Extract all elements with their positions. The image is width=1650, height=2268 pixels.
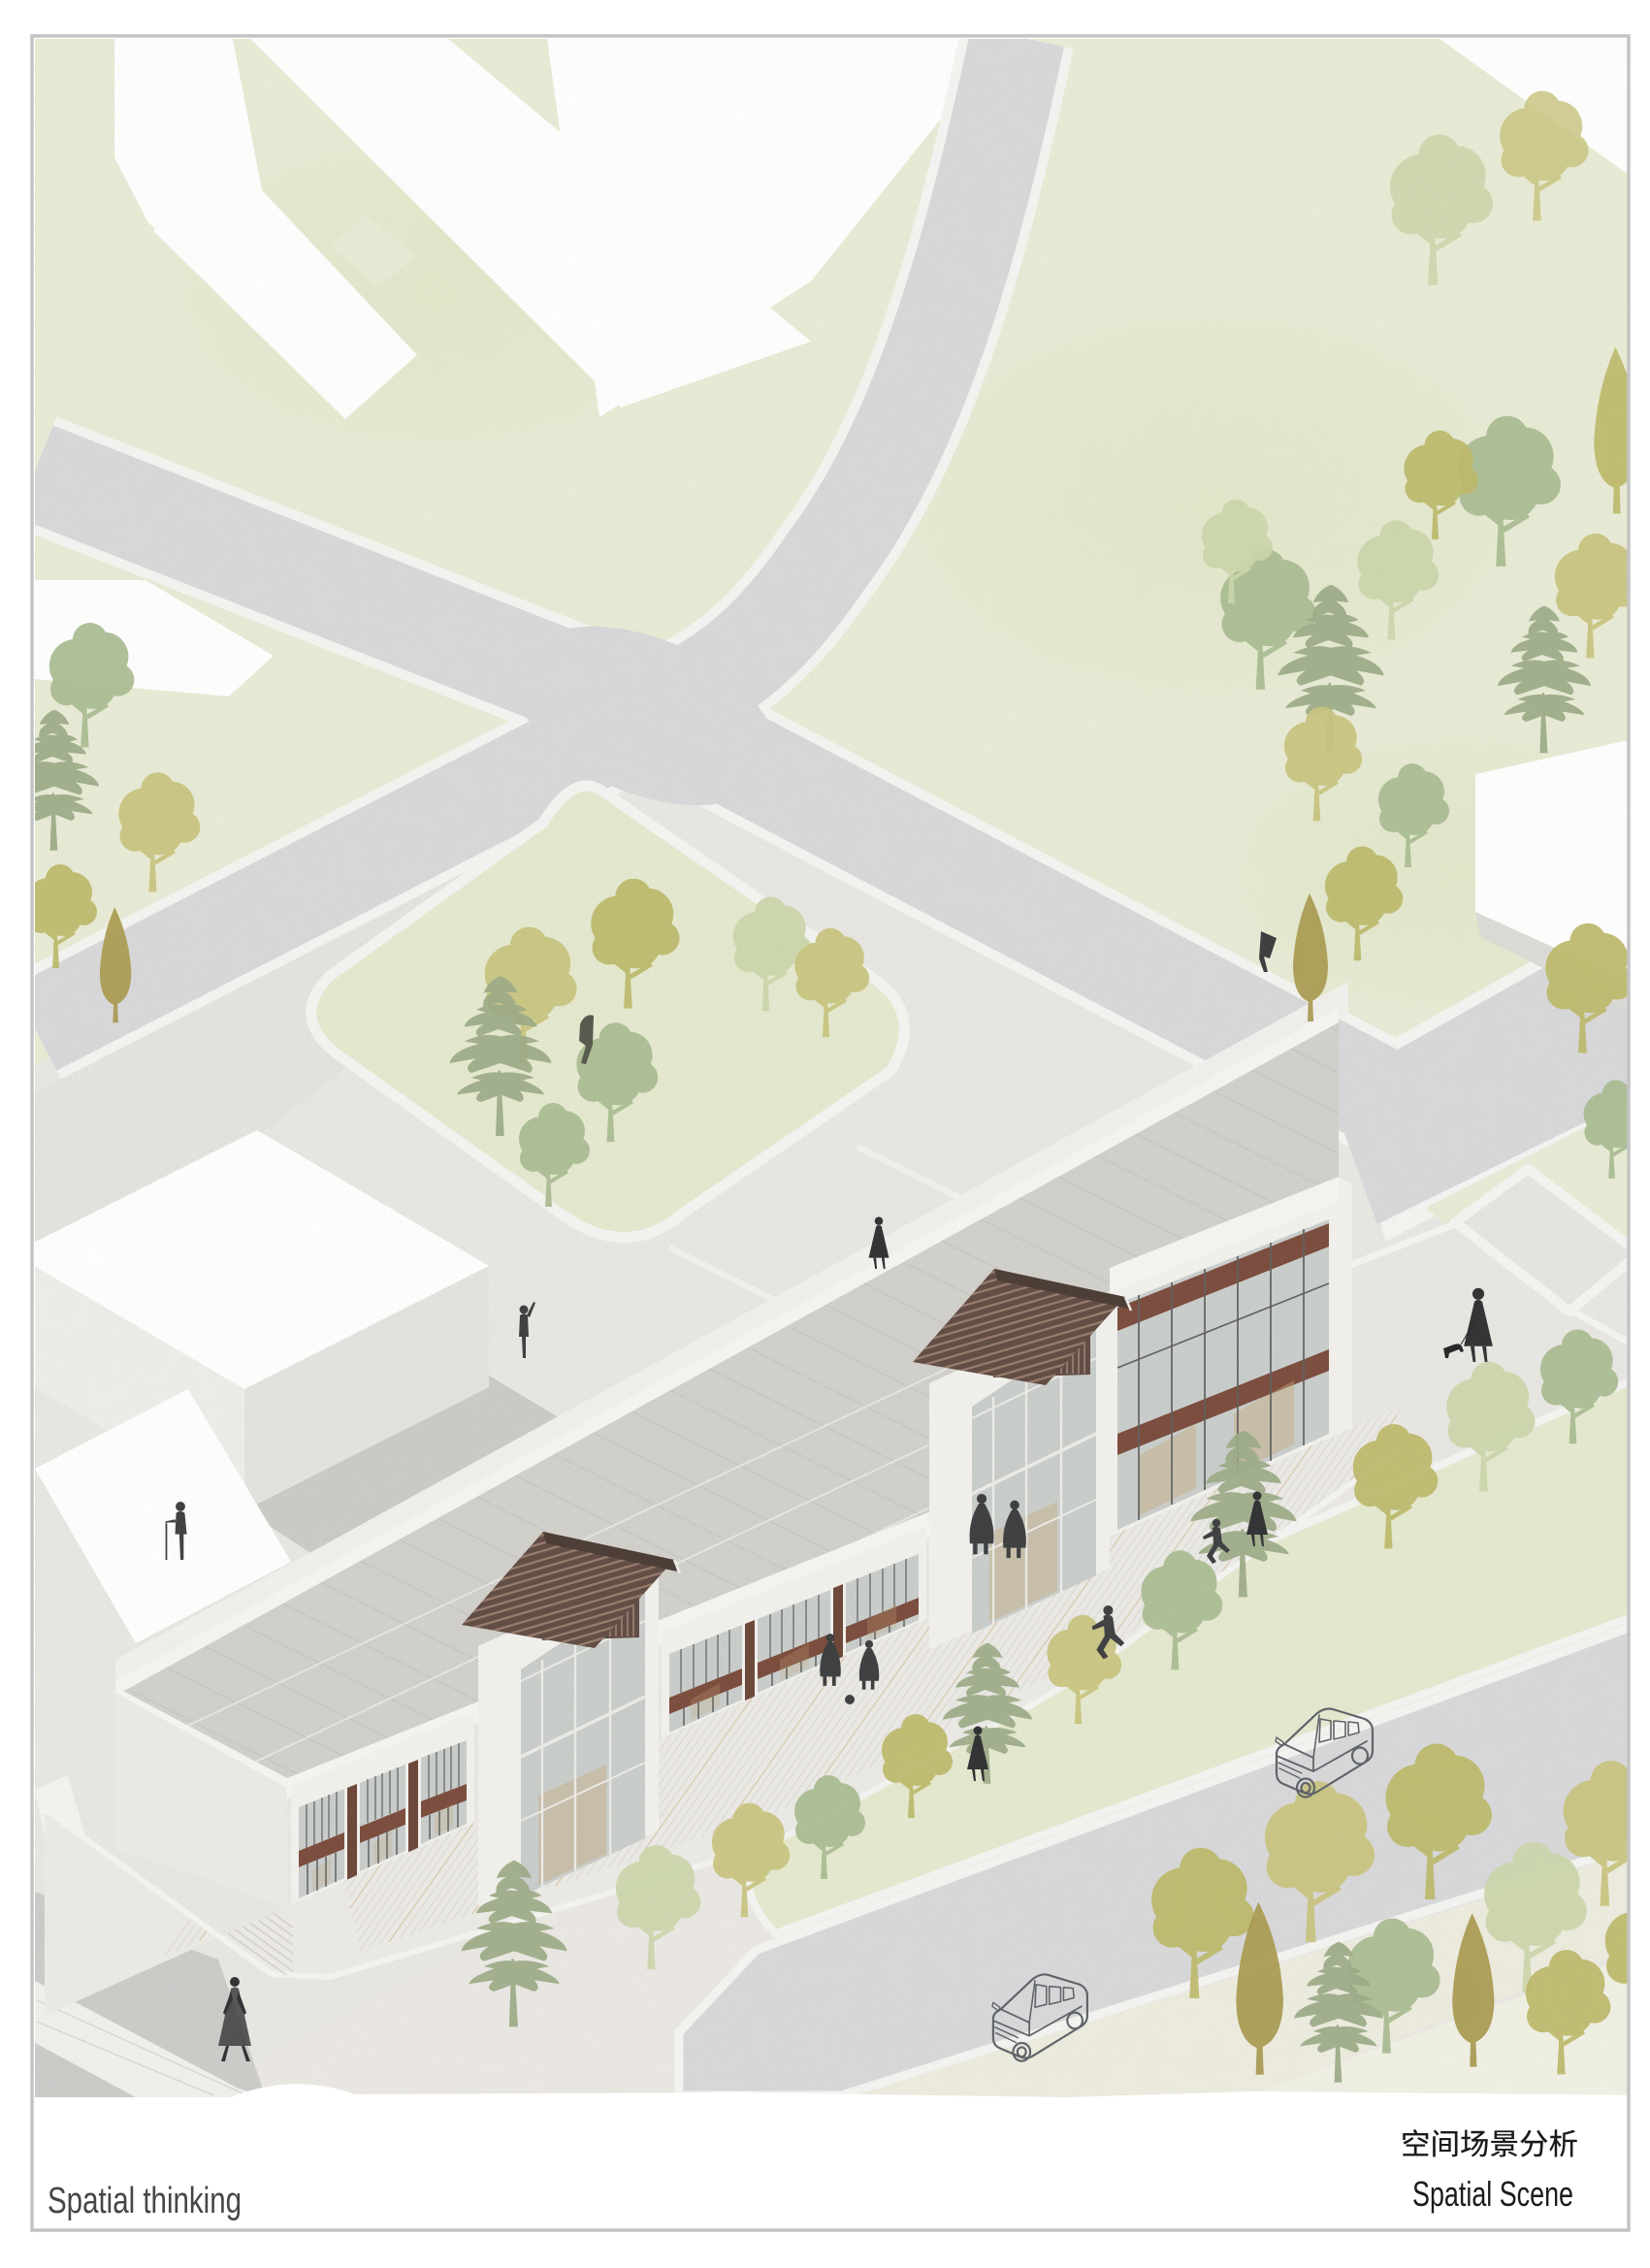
svg-text:Spatial Scene: Spatial Scene [1412,2174,1573,2214]
svg-text:Spatial thinking: Spatial thinking [48,2181,242,2221]
